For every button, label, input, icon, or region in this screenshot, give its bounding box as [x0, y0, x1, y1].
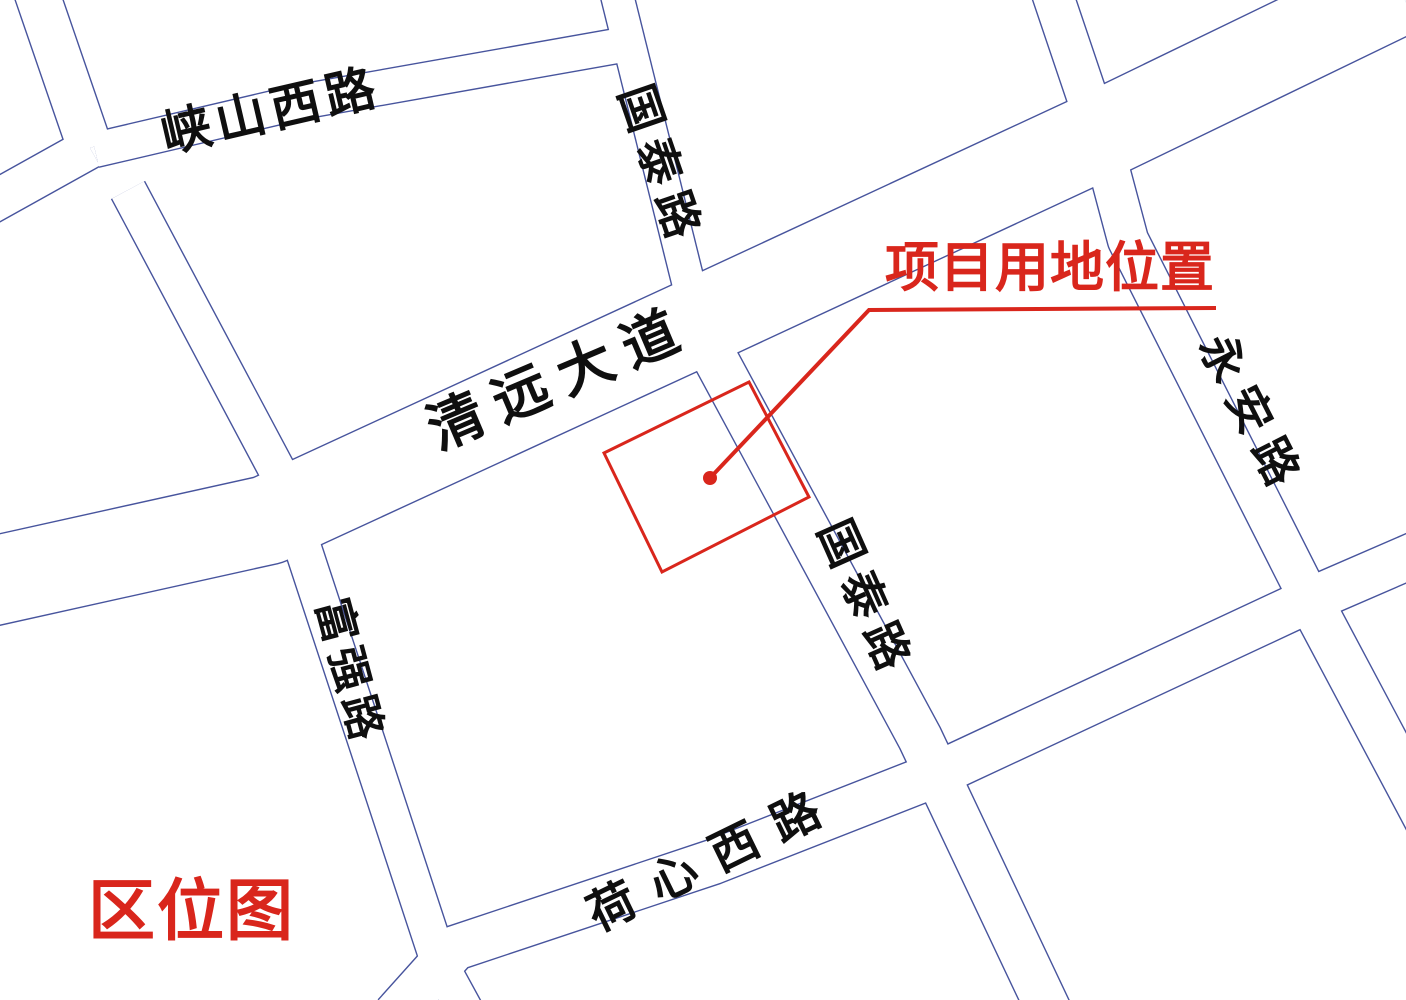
road-surface	[395, 548, 1406, 1000]
project-site-marker-dot	[703, 471, 717, 485]
location-map: 峡山西路国泰路清远大道永安路国泰路富强路荷心西路 项目用地位置 区位图	[0, 0, 1406, 1000]
road-surface	[34, 0, 90, 148]
road-surface	[95, 44, 628, 150]
road-network	[0, 0, 1406, 1000]
road-surface	[1310, 600, 1406, 822]
road-surface	[612, 0, 700, 330]
map-title: 区位图	[88, 878, 295, 945]
project-site-label: 项目用地位置	[885, 241, 1215, 295]
